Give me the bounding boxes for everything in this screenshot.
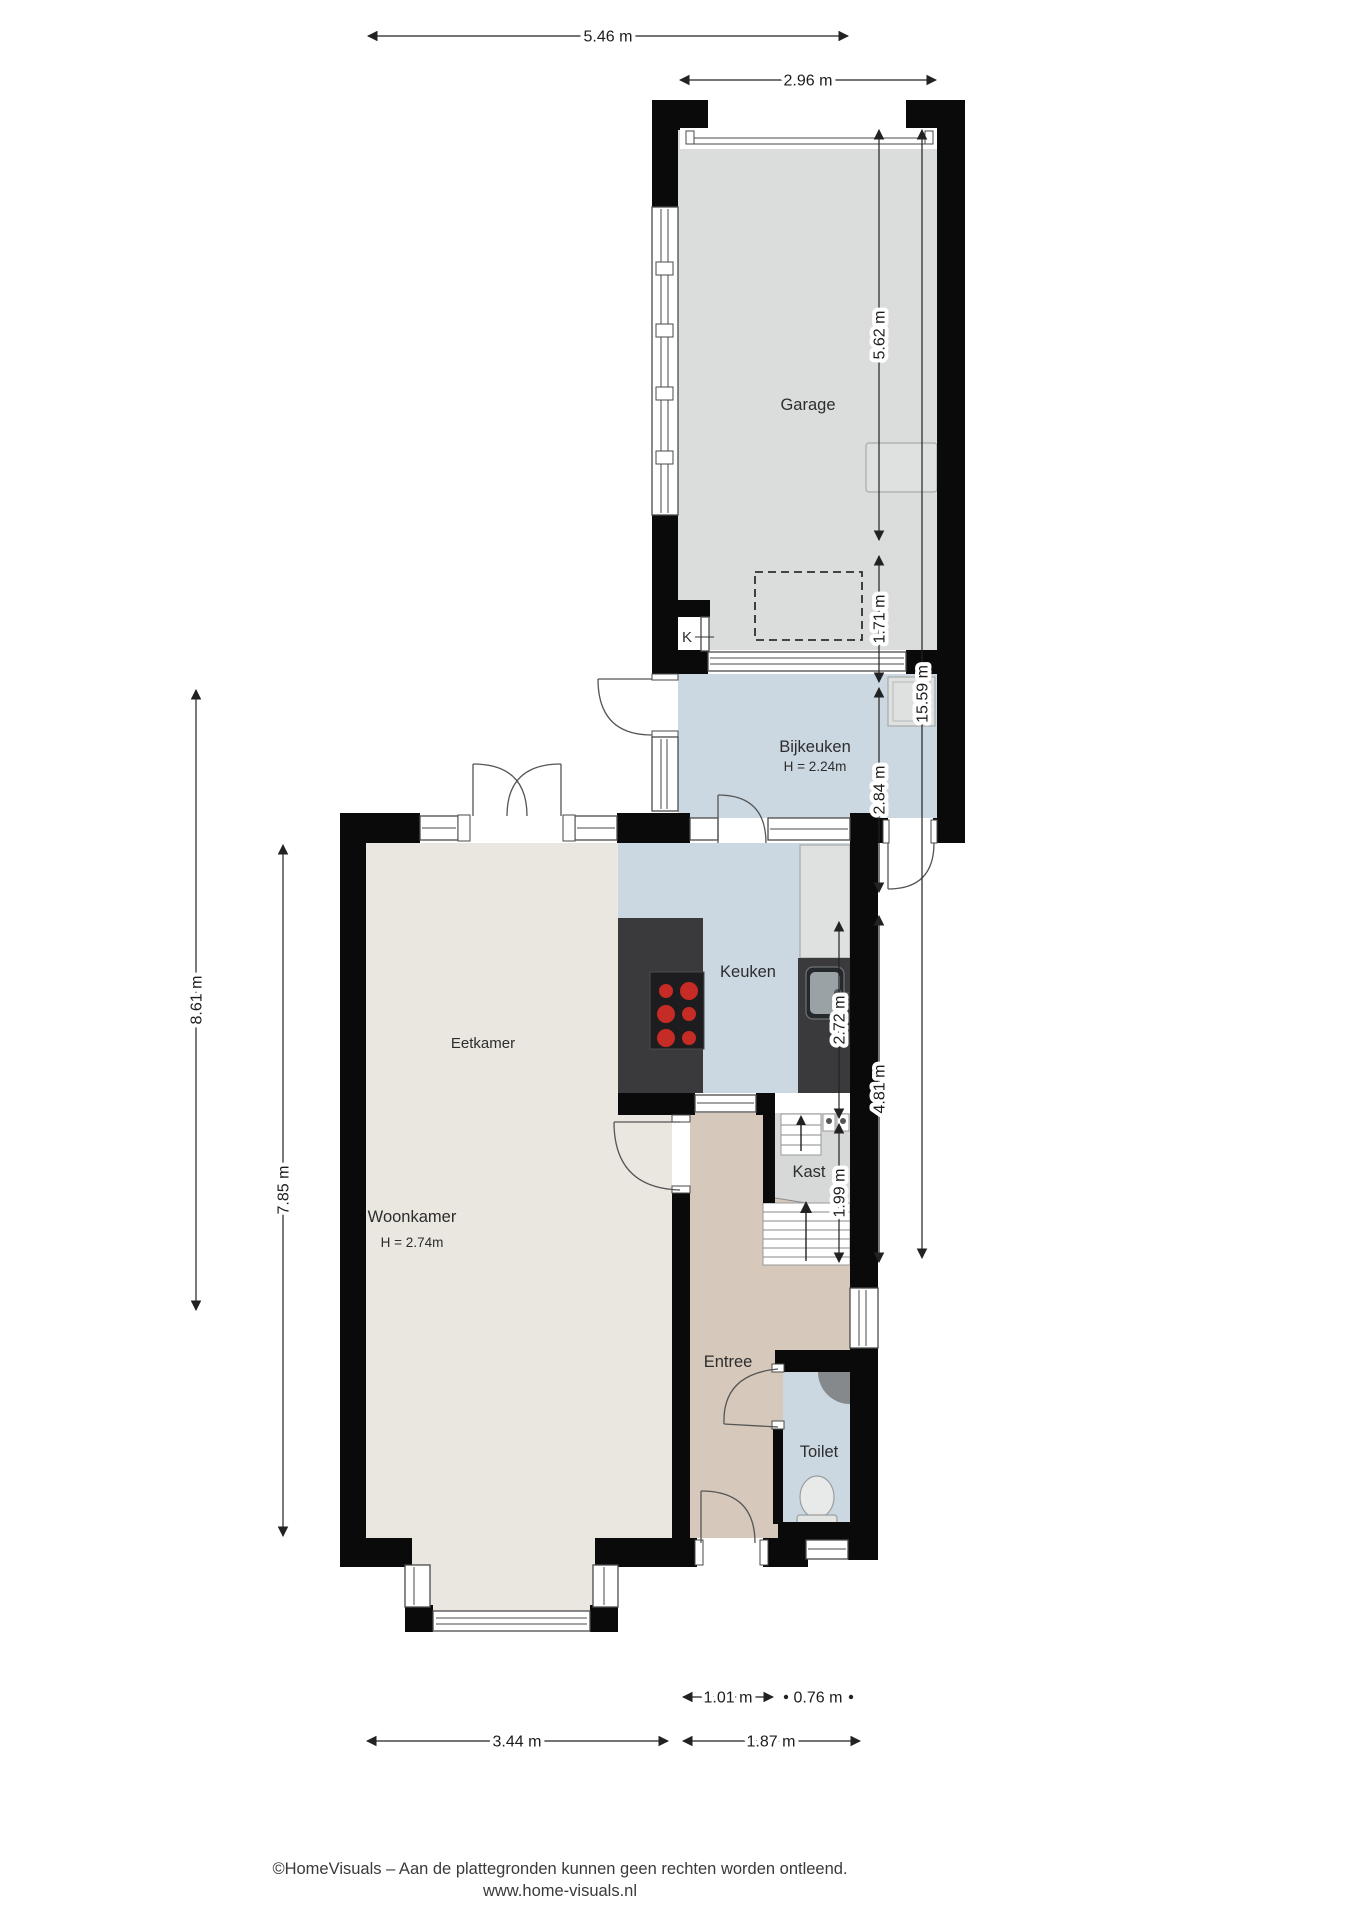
door-post	[458, 815, 470, 841]
dim-label-top-garage: 2.96 m	[784, 73, 833, 90]
door-post	[695, 1540, 703, 1565]
dim-label-bottom-hall: 1.87 m	[747, 1734, 796, 1751]
window	[701, 617, 709, 651]
dim-label-left-outer: 8.61 m	[189, 976, 206, 1025]
dim-label-bottom-door: 1.01 m	[704, 1690, 753, 1707]
bijkeuken-height: H = 2.24m	[784, 759, 847, 774]
wall	[617, 813, 690, 843]
window	[850, 1288, 878, 1348]
toilet-bowl	[800, 1476, 834, 1518]
dim-label-right-kast: 2.72 m	[832, 996, 849, 1045]
door-post	[563, 815, 575, 841]
wall	[937, 100, 965, 674]
wall	[763, 1093, 775, 1203]
wall	[805, 1522, 848, 1542]
window	[593, 1565, 618, 1607]
floorplan-canvas: Garage Bijkeuken H = 2.24m Keuken Eetkam…	[0, 0, 1358, 1920]
window	[433, 1611, 590, 1631]
kitchen-cabinet	[800, 845, 850, 958]
dim-label-right-hall: 4.81 m	[872, 1065, 889, 1114]
wall	[672, 1190, 690, 1538]
stove-burner	[682, 1031, 696, 1045]
door-opening	[885, 820, 935, 841]
garage-door-post	[925, 131, 933, 144]
dim-label-right-total: 15.59 m	[915, 665, 932, 723]
window	[708, 652, 906, 671]
stove-burner	[657, 1005, 675, 1023]
garage-door-post	[686, 131, 694, 144]
wall	[652, 100, 678, 210]
stove-burner	[659, 984, 673, 998]
wall	[590, 1605, 618, 1632]
woonkamer-label: Woonkamer	[368, 1208, 457, 1226]
dim-label-left-inner: 7.85 m	[276, 1166, 293, 1215]
wall	[773, 1427, 783, 1524]
window-mullion	[656, 262, 673, 275]
bijkeuken-label: Bijkeuken	[779, 738, 851, 756]
entree-label: Entree	[704, 1353, 753, 1371]
workbench	[866, 443, 937, 492]
dim-dot	[784, 1695, 788, 1699]
door-post	[652, 731, 678, 737]
footer-url: www.home-visuals.nl	[482, 1882, 637, 1900]
wall	[652, 650, 708, 674]
dim-label-right-garage: 5.62 m	[872, 311, 889, 360]
dim-label-bottom-small: 0.76 m	[794, 1690, 843, 1707]
stove-burner	[680, 982, 698, 1000]
door-post	[883, 820, 889, 843]
door-post	[931, 820, 937, 843]
stove-burner	[657, 1029, 675, 1047]
window	[690, 818, 718, 840]
dim-label-top-main: 5.46 m	[584, 29, 633, 46]
stove-burner	[682, 1007, 696, 1021]
door-opening	[652, 676, 678, 735]
keuken-label: Keuken	[720, 963, 776, 981]
wall	[340, 1538, 412, 1567]
door-post	[672, 1115, 690, 1122]
dim-label-bottom-living: 3.44 m	[493, 1734, 542, 1751]
kast-label: Kast	[792, 1163, 825, 1181]
window-mullion	[656, 451, 673, 464]
wall	[676, 600, 710, 617]
door-post	[652, 674, 678, 680]
wall	[850, 813, 878, 843]
window	[405, 1565, 430, 1607]
k-closet-label: K	[682, 629, 692, 646]
garage-label: Garage	[780, 396, 835, 414]
bay-floor	[410, 1538, 595, 1611]
window	[652, 737, 678, 811]
wall	[933, 818, 965, 843]
meter-icon	[826, 1118, 832, 1124]
door-post	[772, 1421, 784, 1429]
dim-dot	[849, 1695, 853, 1699]
dim-label-right-toilet: 1.99 m	[832, 1169, 849, 1218]
wall	[340, 813, 366, 1538]
window	[652, 207, 678, 515]
door-post	[760, 1540, 768, 1565]
eetkamer-label: Eetkamer	[451, 1035, 515, 1052]
wall	[595, 1538, 697, 1567]
footer-copyright: ©HomeVisuals – Aan de plattegronden kunn…	[272, 1860, 847, 1878]
wall	[763, 1538, 808, 1567]
window-mullion	[656, 324, 673, 337]
door-post	[772, 1364, 784, 1372]
dim-label-right-bijkeuken: 1.71 m	[872, 595, 889, 644]
dim-label-right-keuken: 2.84 m	[872, 766, 889, 815]
wall	[848, 1522, 878, 1560]
window-mullion	[656, 387, 673, 400]
wall	[405, 1605, 433, 1632]
door-opening	[697, 1541, 763, 1564]
wall	[937, 674, 965, 818]
meter-icon	[840, 1118, 846, 1124]
wall	[775, 1350, 878, 1372]
toilet-label: Toilet	[800, 1443, 839, 1461]
woonkamer-height: H = 2.74m	[381, 1235, 444, 1250]
